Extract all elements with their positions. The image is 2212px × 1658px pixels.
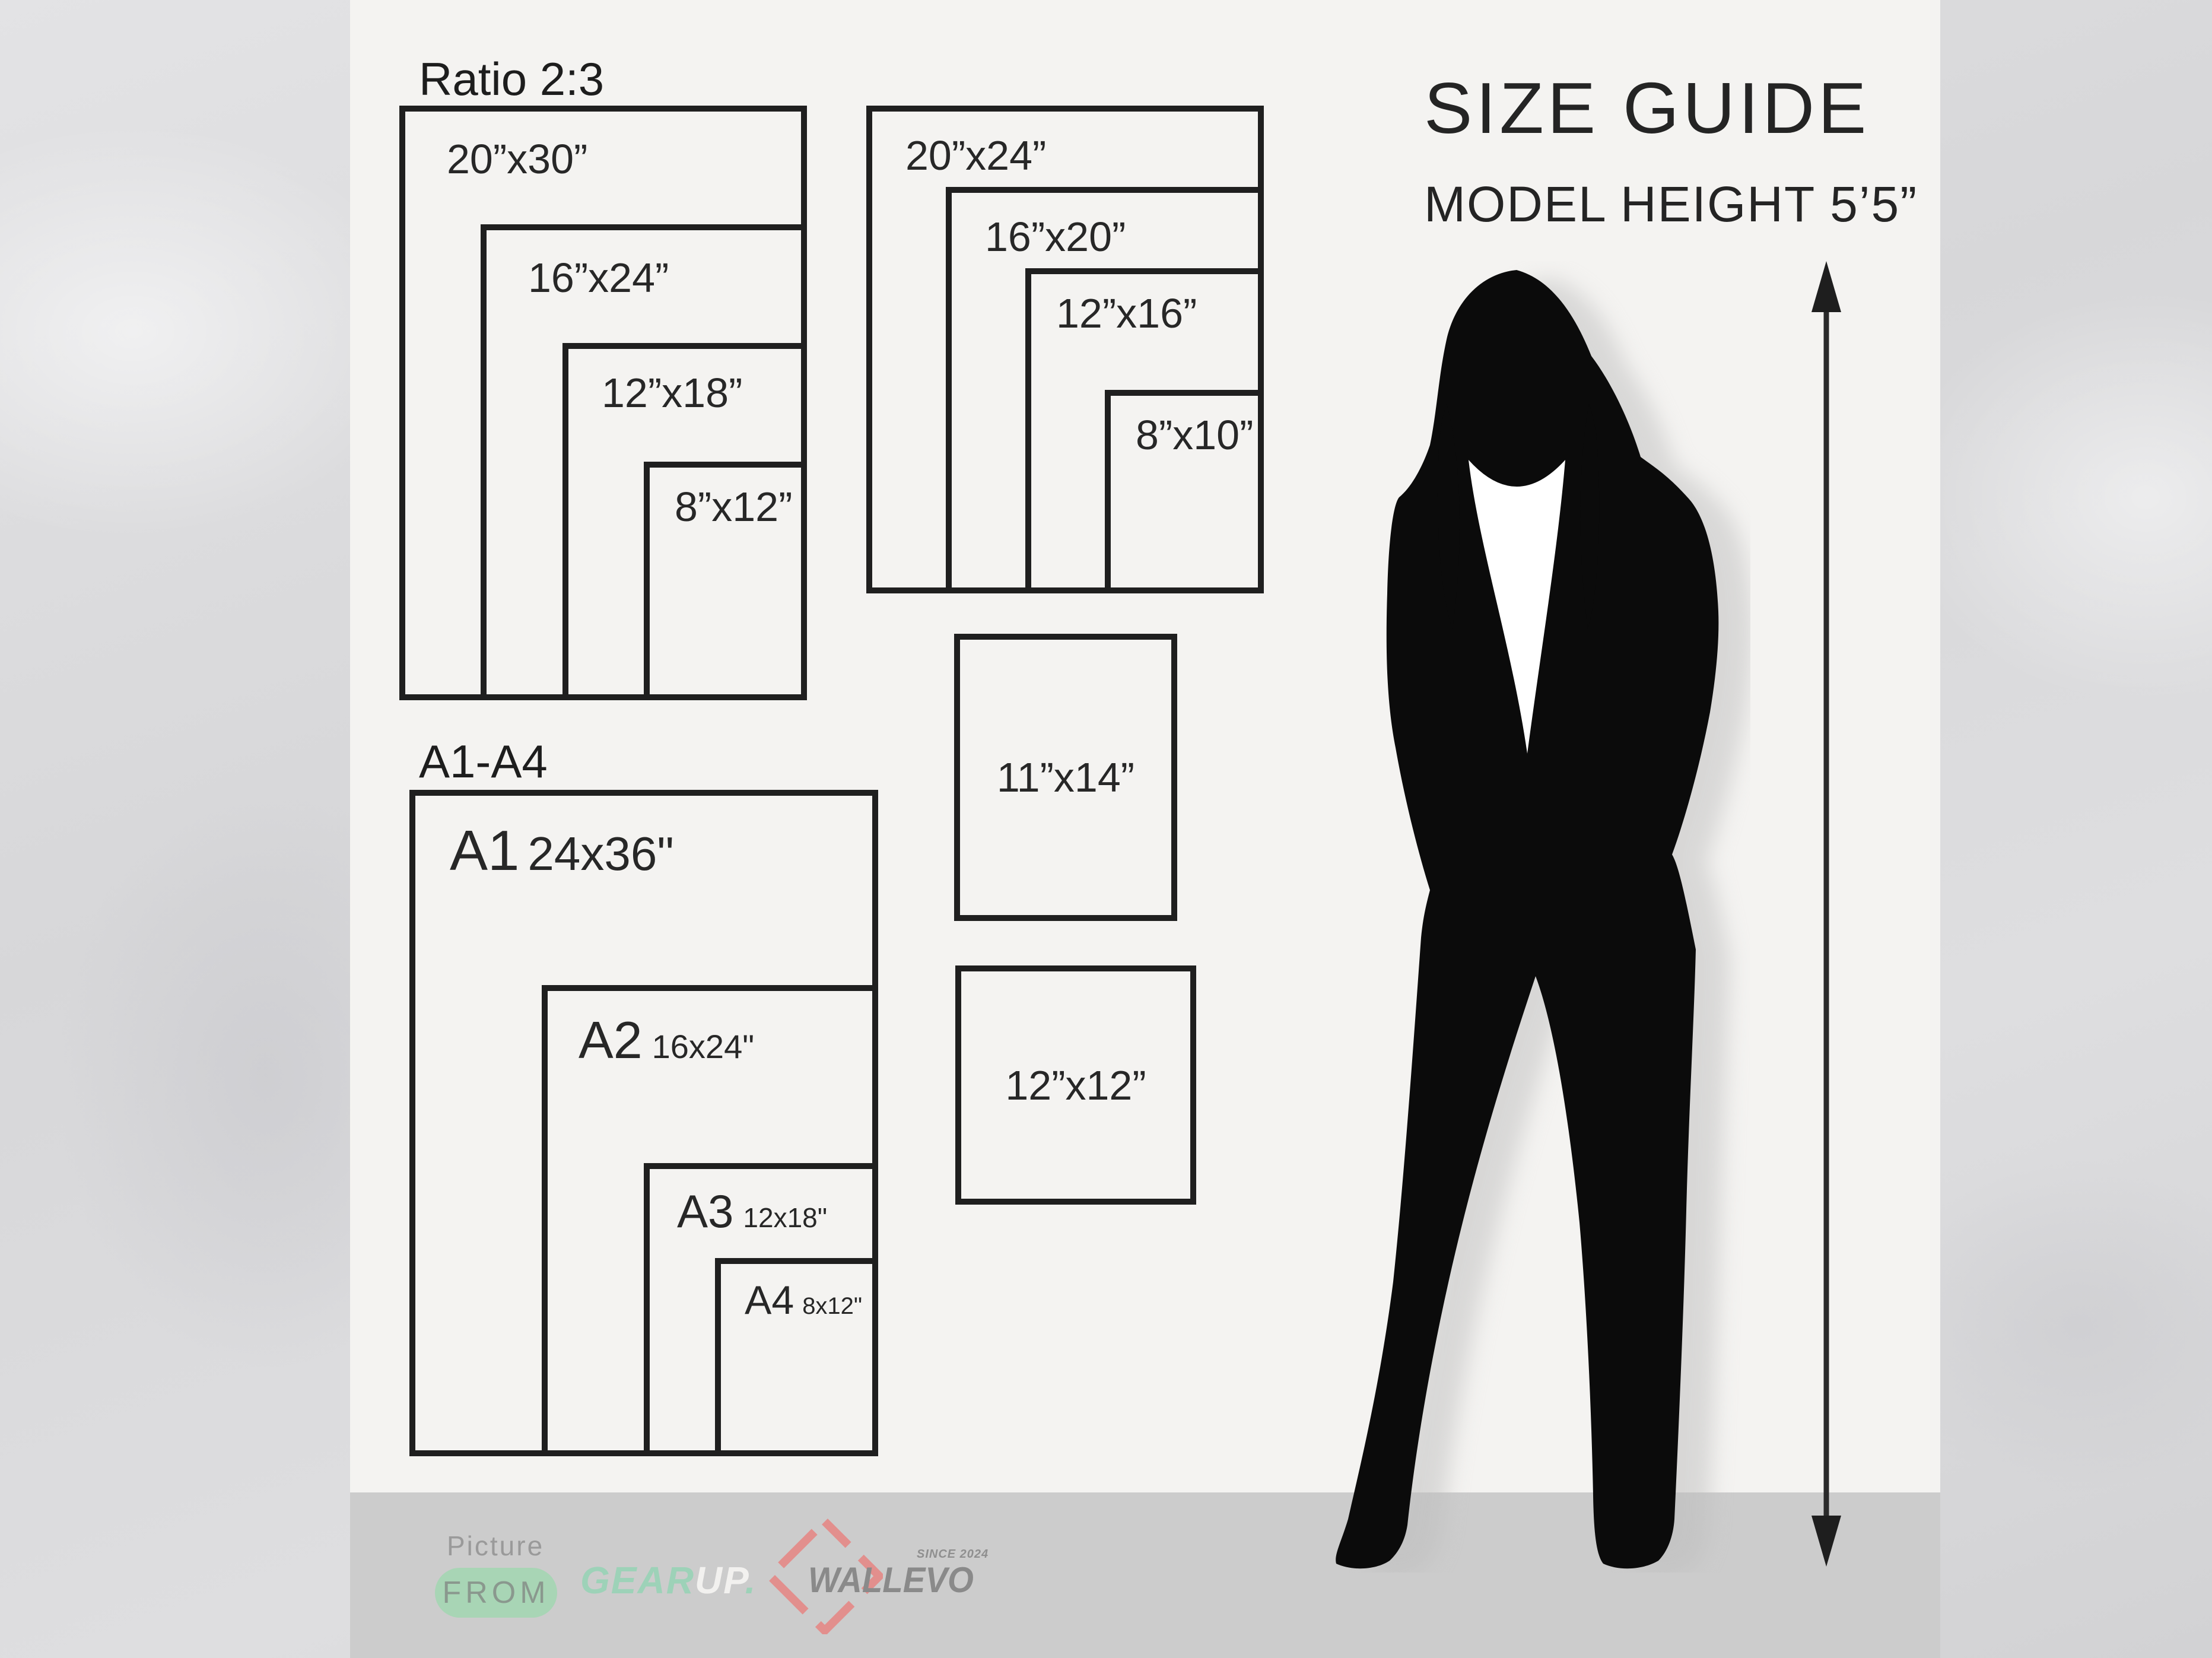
arrow-up-icon xyxy=(1811,261,1841,312)
size-box-8x12: 8”x12” xyxy=(644,462,807,700)
size-label: 8”x12” xyxy=(650,468,801,531)
size-box-11x14: 11”x14” xyxy=(954,634,1177,921)
a-code: A4 xyxy=(745,1277,794,1323)
size-label: 8”x10” xyxy=(1111,396,1258,459)
size-box-12x12: 12”x12” xyxy=(955,965,1196,1205)
size-label: 12”x18” xyxy=(568,349,801,417)
size-label: 20”x24” xyxy=(872,112,1258,179)
model-silhouette xyxy=(1323,261,1750,1573)
wallevo-logo: WALLEVO xyxy=(808,1559,974,1600)
a-series-heading: A1-A4 xyxy=(419,735,548,789)
page-title: SIZE GUIDE xyxy=(1424,66,1870,150)
size-box-a4: A4 8x12" xyxy=(715,1258,878,1456)
size-guide-infographic: Ratio 2:3 20”x30” 16”x24” 12”x18” 8”x12”… xyxy=(0,0,2212,1658)
size-box-8x10: 8”x10” xyxy=(1105,390,1264,593)
size-label: A1 24x36" xyxy=(415,796,872,884)
a-code: A2 xyxy=(579,1010,643,1071)
arrow-down-icon xyxy=(1811,1516,1841,1567)
gearup-logo-up: UP xyxy=(695,1559,745,1602)
size-label: 20”x30” xyxy=(405,112,801,183)
model-height-label: MODEL HEIGHT 5’5” xyxy=(1424,176,1918,233)
from-badge: FROM xyxy=(435,1568,557,1618)
ratio-group-heading: Ratio 2:3 xyxy=(419,52,604,106)
from-badge-text: FROM xyxy=(442,1575,549,1611)
picture-label: Picture xyxy=(447,1530,544,1562)
a-code: A3 xyxy=(677,1184,733,1238)
size-label: 11”x14” xyxy=(960,640,1171,915)
size-label: A4 8x12" xyxy=(721,1264,872,1323)
gearup-logo: GEARUP. xyxy=(580,1558,757,1602)
a-size: 8x12" xyxy=(802,1293,862,1320)
size-label: 16”x24” xyxy=(487,230,801,301)
size-label: 12”x16” xyxy=(1031,274,1258,337)
a-size: 24x36" xyxy=(527,827,673,881)
gearup-logo-dot: . xyxy=(745,1559,757,1602)
size-label: A3 12x18" xyxy=(650,1169,872,1238)
a-size: 12x18" xyxy=(743,1202,827,1234)
a-size: 16x24" xyxy=(652,1027,754,1066)
gearup-logo-gear: GEAR xyxy=(580,1559,695,1602)
size-label: 12”x12” xyxy=(961,971,1190,1199)
model-height-arrow xyxy=(1798,255,1855,1573)
size-label: 16”x20” xyxy=(952,193,1258,261)
a-code: A1 xyxy=(450,818,519,884)
size-label: A2 16x24" xyxy=(548,991,872,1071)
